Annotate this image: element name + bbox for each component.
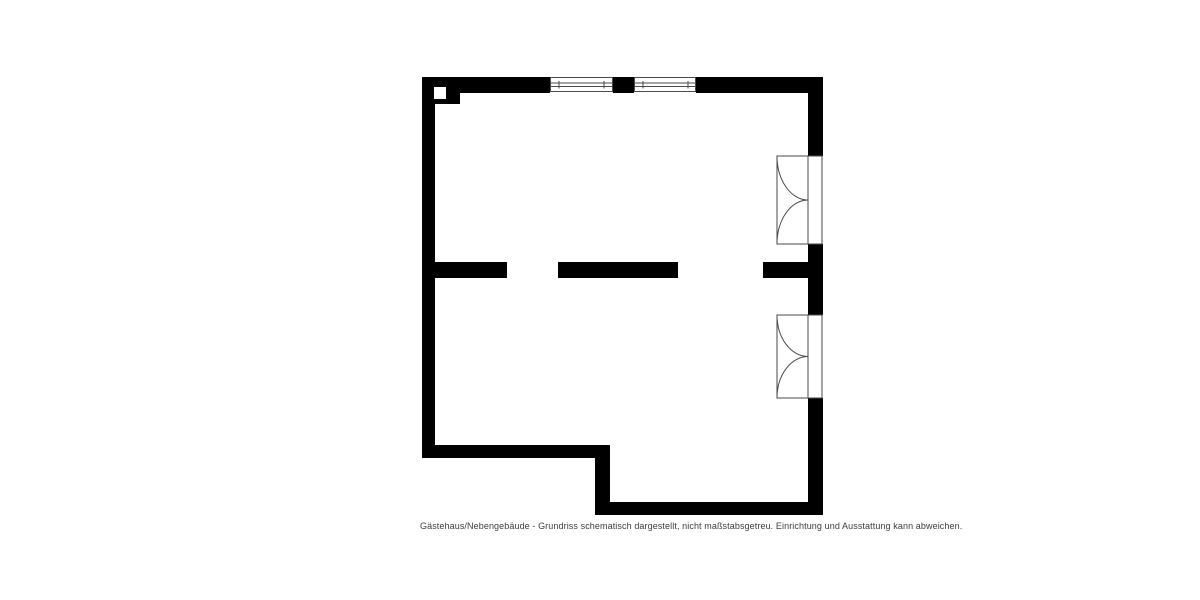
- interior-wall-segment-left: [435, 262, 507, 278]
- wall-top-right: [696, 77, 823, 93]
- wall-bottom: [595, 502, 823, 515]
- window-icon: [550, 78, 613, 92]
- interior-wall-segment-right: [763, 262, 808, 278]
- wall-left: [422, 77, 435, 458]
- window-icon: [634, 78, 696, 92]
- wall-bottom-left: [422, 445, 610, 458]
- floorplan-caption: Gästehaus/Nebengebäude - Grundriss schem…: [420, 521, 962, 532]
- floor-plan-canvas: [0, 0, 1200, 600]
- window-frame: [635, 78, 696, 92]
- wall-window-pier: [613, 77, 634, 93]
- double-door-swing-icon: [777, 156, 822, 244]
- door-frame: [777, 156, 822, 244]
- floor-plan: [0, 0, 1200, 600]
- wall-right-upper: [808, 77, 823, 156]
- interior-wall: [435, 262, 808, 278]
- interior-wall-segment-middle: [558, 262, 678, 278]
- chimney-flue-icon: [422, 77, 460, 104]
- chimney-opening: [434, 87, 446, 99]
- wall-right-lower: [808, 398, 823, 515]
- wall-right-middle: [808, 244, 823, 315]
- window-frame: [551, 78, 613, 92]
- double-door-swing-icon: [777, 315, 822, 398]
- door-frame: [777, 315, 822, 398]
- exterior-walls: [422, 77, 823, 515]
